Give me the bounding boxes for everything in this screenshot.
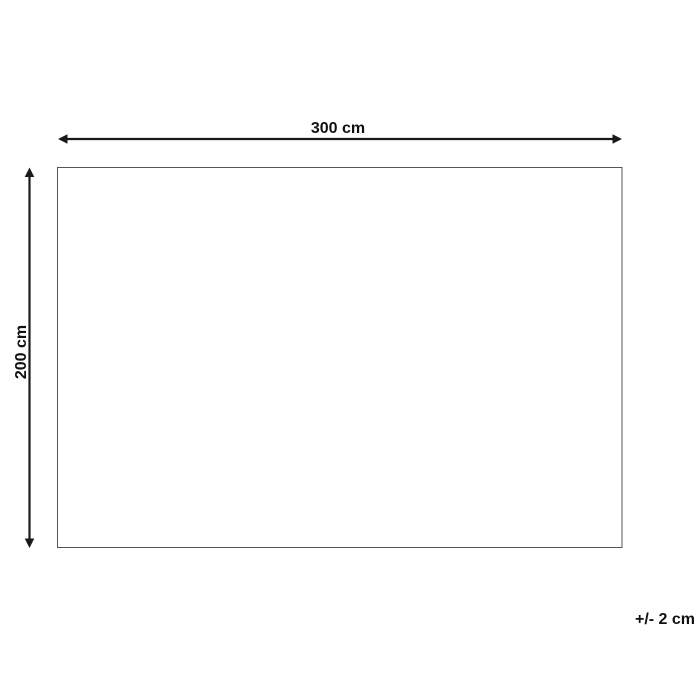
svg-text:+/- 2 cm: +/- 2 cm bbox=[635, 611, 695, 628]
svg-text:300 cm: 300 cm bbox=[311, 120, 365, 137]
svg-text:200 cm: 200 cm bbox=[13, 325, 30, 379]
